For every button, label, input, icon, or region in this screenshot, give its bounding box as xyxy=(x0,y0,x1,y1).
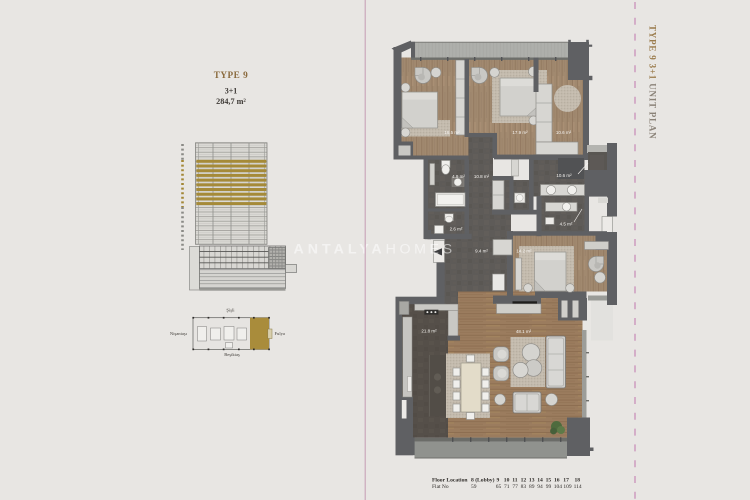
svg-text:Şişli: Şişli xyxy=(226,308,235,313)
svg-text:10.8 m²: 10.8 m² xyxy=(474,174,490,179)
svg-text:ANTALYAHOMES: ANTALYAHOMES xyxy=(294,242,456,258)
svg-text:9.4 m²: 9.4 m² xyxy=(475,249,488,254)
svg-text:10.6 m²: 10.6 m² xyxy=(556,130,572,135)
svg-text:Fulya: Fulya xyxy=(275,331,285,336)
svg-text:4.5 m²: 4.5 m² xyxy=(560,222,573,227)
svg-text:10.6 m²: 10.6 m² xyxy=(556,173,572,178)
svg-text:Nişantaşı: Nişantaşı xyxy=(170,331,188,336)
svg-text:3+1: 3+1 xyxy=(225,87,238,96)
svg-text:284,7 m²: 284,7 m² xyxy=(216,97,246,106)
svg-text:21.8 m²: 21.8 m² xyxy=(421,329,437,334)
svg-text:Beşiktaş: Beşiktaş xyxy=(224,352,240,357)
svg-text:TYPE 9: TYPE 9 xyxy=(214,70,248,80)
svg-text:17.9 m²: 17.9 m² xyxy=(512,130,528,135)
svg-text:2.6 m²: 2.6 m² xyxy=(450,227,463,232)
svg-text:16.5 m²: 16.5 m² xyxy=(444,130,460,135)
svg-text:14.2 m²: 14.2 m² xyxy=(516,249,532,254)
svg-text:48.1 m²: 48.1 m² xyxy=(516,329,532,334)
svg-text:4.9 m²: 4.9 m² xyxy=(452,174,465,179)
svg-text:Floor Location8 (Lobby)9101112: Floor Location8 (Lobby)91011121314151617… xyxy=(432,477,580,484)
svg-text:TYPE 9 3+1 UNIT PLAN: TYPE 9 3+1 UNIT PLAN xyxy=(648,25,658,139)
